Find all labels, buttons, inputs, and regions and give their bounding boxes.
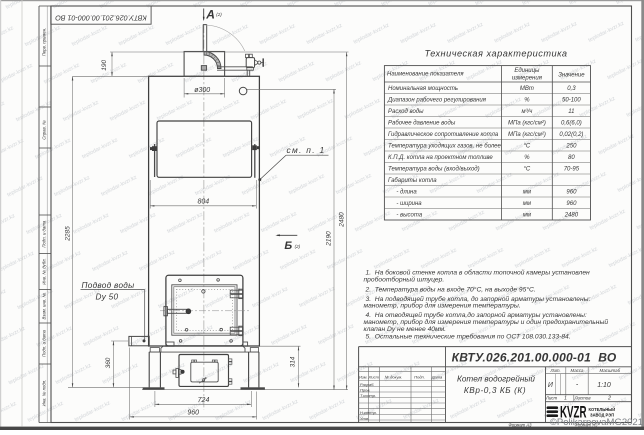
svg-text:Масса: Масса bbox=[571, 368, 585, 373]
svg-text:Габариты котла: Габариты котла bbox=[388, 178, 437, 184]
svg-text:МПа (кгс/см²): МПа (кгс/см²) bbox=[508, 132, 546, 138]
svg-text:360: 360 bbox=[105, 357, 112, 368]
svg-text:80: 80 bbox=[568, 155, 575, 161]
svg-text:КОТЕЛЬНЫЙ: КОТЕЛЬНЫЙ bbox=[589, 407, 616, 412]
svg-text:190: 190 bbox=[101, 59, 108, 70]
svg-text:- высота: - высота bbox=[388, 213, 423, 219]
svg-text:Гидравлическое сопротивление к: Гидравлическое сопротивление котла bbox=[388, 132, 499, 138]
svg-text:0,02(0,2): 0,02(0,2) bbox=[559, 132, 583, 138]
svg-text:Dy 50: Dy 50 bbox=[96, 292, 119, 301]
svg-text:Утв.: Утв. bbox=[360, 416, 369, 421]
svg-text:измерения: измерения bbox=[512, 76, 543, 82]
svg-text:960: 960 bbox=[566, 190, 577, 196]
svg-text:960: 960 bbox=[187, 409, 199, 416]
svg-text:Диапазон рабочего регулировани: Диапазон рабочего регулирования bbox=[387, 98, 487, 104]
svg-text:Лист: Лист bbox=[368, 374, 380, 379]
svg-text:КВТУ.026.201.00.000-01 ВО: КВТУ.026.201.00.000-01 ВО bbox=[55, 13, 147, 22]
svg-text:м³/ч: м³/ч bbox=[521, 109, 532, 115]
svg-text:Единицы: Единицы bbox=[514, 68, 540, 74]
svg-text:- ширина: - ширина bbox=[388, 201, 422, 207]
svg-text:Наименование показателя: Наименование показателя bbox=[387, 72, 464, 78]
svg-text:Масштаб: Масштаб bbox=[600, 368, 621, 373]
svg-text:0,3: 0,3 bbox=[567, 86, 576, 92]
svg-text:Подп. и дата: Подп. и дата bbox=[42, 220, 47, 248]
svg-text:5. Остальные технические треб: 5. Остальные технические требования по О… bbox=[366, 333, 571, 341]
svg-text:Температура воды (вход/выход): Температура воды (вход/выход) bbox=[388, 167, 480, 173]
svg-text:пробоотборный штуцер.: пробоотборный штуцер. bbox=[364, 275, 445, 283]
svg-text:2: 2 bbox=[607, 396, 611, 402]
svg-text:МПа (кгс/см²): МПа (кгс/см²) bbox=[508, 121, 546, 127]
svg-text:%: % bbox=[524, 155, 530, 161]
svg-text:2480: 2480 bbox=[338, 212, 345, 228]
svg-text:Справ. №: Справ. № bbox=[42, 120, 47, 140]
svg-text:Рабочее давление воды: Рабочее давление воды bbox=[388, 121, 456, 127]
svg-text:Техническая характеристика: Техническая характеристика bbox=[424, 48, 567, 58]
svg-text:Котел водогрейный: Котел водогрейный bbox=[457, 374, 535, 383]
svg-text:Подп.: Подп. bbox=[414, 374, 425, 379]
svg-text:Температура уходящих газов, не: Температура уходящих газов, не более bbox=[388, 144, 501, 150]
svg-text:70-95: 70-95 bbox=[564, 167, 580, 173]
svg-text:Б: Б bbox=[284, 240, 292, 252]
svg-text:см. п. 1: см. п. 1 bbox=[287, 145, 326, 155]
svg-text:ø300: ø300 bbox=[194, 87, 210, 94]
svg-text:Дата: Дата bbox=[431, 374, 443, 379]
svg-text:2480: 2480 bbox=[564, 213, 579, 219]
svg-text:Н.контр.: Н.контр. bbox=[360, 410, 377, 415]
svg-text:клапан Dу не менее 40мм.: клапан Dу не менее 40мм. bbox=[364, 326, 447, 333]
svg-text:960: 960 bbox=[566, 201, 577, 207]
svg-text:804: 804 bbox=[197, 198, 209, 205]
svg-text:Номинальная мощность: Номинальная мощность bbox=[388, 86, 458, 92]
svg-text:манометр, прибор для измерения: манометр, прибор для измерения температу… bbox=[364, 302, 521, 310]
svg-text:314: 314 bbox=[290, 356, 297, 367]
svg-text:Формат А3: Формат А3 bbox=[575, 423, 599, 428]
svg-text:2. Температура воды на входе: 2. Температура воды на входе 70°С, на вы… bbox=[365, 286, 536, 294]
svg-text:КВр-0,3 КБ (К): КВр-0,3 КБ (К) bbox=[464, 386, 526, 395]
svg-text:Лит.: Лит. bbox=[549, 368, 560, 373]
svg-text:Подп. и дата: Подп. и дата bbox=[42, 329, 47, 357]
svg-text:Подвод воды: Подвод воды bbox=[82, 281, 135, 290]
svg-text:МВт: МВт bbox=[520, 86, 534, 92]
svg-text:1:10: 1:10 bbox=[597, 382, 611, 389]
svg-text:Разраб.: Разраб. bbox=[360, 382, 374, 387]
svg-text:- длина: - длина bbox=[388, 190, 417, 196]
svg-text:мм: мм bbox=[523, 190, 531, 196]
svg-text:(2): (2) bbox=[295, 244, 301, 249]
svg-text:50-100: 50-100 bbox=[562, 98, 581, 104]
svg-text:Изм.: Изм. bbox=[359, 374, 368, 379]
svg-text:№ докум.: № докум. bbox=[385, 374, 403, 379]
svg-text:Перв. примен.: Перв. примен. bbox=[42, 28, 47, 57]
svg-text:Взам. инв. №: Взам. инв. № bbox=[42, 293, 47, 320]
svg-text:К.П.Д. котла на проектном топл: К.П.Д. котла на проектном топливе bbox=[388, 155, 493, 161]
svg-text:724: 724 bbox=[198, 397, 210, 404]
svg-text:КВТУ.026.201.00.000-01 ВО: КВТУ.026.201.00.000-01 ВО bbox=[452, 351, 617, 365]
svg-text:Лист: Лист bbox=[545, 396, 558, 401]
svg-text:Инв. № подл.: Инв. № подл. bbox=[42, 380, 47, 407]
svg-text:4. На отводящей трубе котла,д: 4. На отводящей трубе котла,до запорной … bbox=[366, 311, 587, 319]
svg-text:11: 11 bbox=[568, 109, 574, 115]
svg-text:2285: 2285 bbox=[64, 226, 71, 242]
svg-text:манометр, прибор для измерения: манометр, прибор для измерения температу… bbox=[364, 318, 609, 326]
svg-text:°С: °С bbox=[524, 144, 531, 150]
svg-text:Расход воды: Расход воды bbox=[388, 109, 424, 115]
svg-text:Инв. № дубл.: Инв. № дубл. bbox=[42, 258, 47, 284]
svg-text:1: 1 bbox=[564, 396, 567, 402]
svg-text:мм: мм bbox=[523, 201, 531, 207]
svg-text:250: 250 bbox=[565, 144, 577, 150]
svg-text:мм: мм bbox=[523, 213, 531, 219]
svg-text:Пров.: Пров. bbox=[360, 388, 371, 393]
svg-text:(2): (2) bbox=[216, 12, 222, 17]
svg-text:Значение: Значение bbox=[558, 72, 585, 78]
svg-text:Формат А3: Формат А3 bbox=[509, 423, 533, 428]
svg-text:А: А bbox=[205, 7, 215, 21]
svg-text:0,6(6,0): 0,6(6,0) bbox=[561, 121, 582, 127]
svg-text:%: % bbox=[524, 98, 530, 104]
svg-text:Листов: Листов bbox=[574, 396, 592, 401]
svg-text:2190: 2190 bbox=[326, 231, 333, 247]
svg-text:Т.контр.: Т.контр. bbox=[360, 393, 376, 398]
svg-text:°С: °С bbox=[524, 167, 531, 173]
